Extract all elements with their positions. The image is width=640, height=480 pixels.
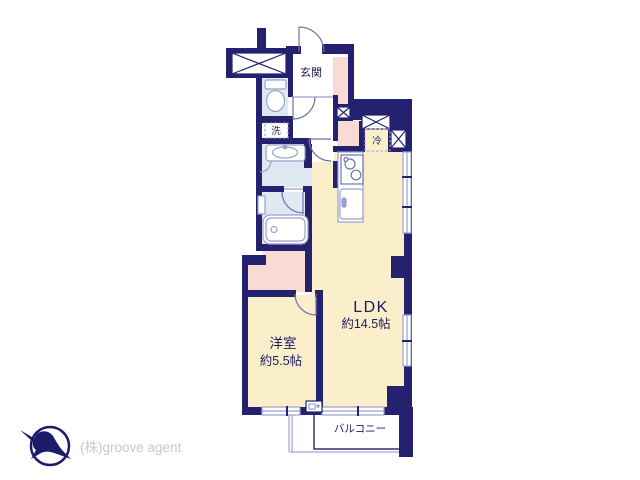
closet <box>337 121 359 149</box>
stove-burner <box>351 170 361 180</box>
label-western-room: 洋室 <box>270 335 297 351</box>
utility-box <box>306 401 322 412</box>
label-fridge: 冷 <box>372 135 382 147</box>
floor-plan-drawing: 玄関 洗 冷 LDK 約14.5帖 洋室 約5.5帖 バルコニー (株)groo… <box>0 0 640 480</box>
duct-box <box>362 115 390 129</box>
floor-plan-page: 玄関 洗 冷 LDK 約14.5帖 洋室 約5.5帖 バルコニー (株)groo… <box>0 0 640 480</box>
label-ldk-size: 約14.5帖 <box>341 316 390 331</box>
entrance-door <box>299 27 324 52</box>
company-logo: (株)groove agent <box>20 427 182 465</box>
logo-bird-icon <box>20 430 71 459</box>
void-box <box>232 53 286 74</box>
company-name: (株)groove agent <box>80 440 182 455</box>
bathtub-drain <box>271 227 277 233</box>
corridor <box>263 250 307 292</box>
vanity-faucet <box>283 145 287 149</box>
bath-shelf <box>258 196 265 214</box>
label-entrance: 玄関 <box>300 65 322 79</box>
label-western-room-size: 約5.5帖 <box>260 353 302 368</box>
kitchen-faucet <box>342 198 346 207</box>
label-ldk: LDK <box>353 299 389 316</box>
toilet-tank <box>265 80 286 89</box>
toilet-bowl <box>267 91 285 112</box>
meter-box <box>337 107 350 118</box>
label-balcony: バルコニー <box>334 423 386 435</box>
pipe-space-box <box>391 130 406 148</box>
room-western <box>247 295 317 409</box>
label-washer: 洗 <box>271 125 281 137</box>
